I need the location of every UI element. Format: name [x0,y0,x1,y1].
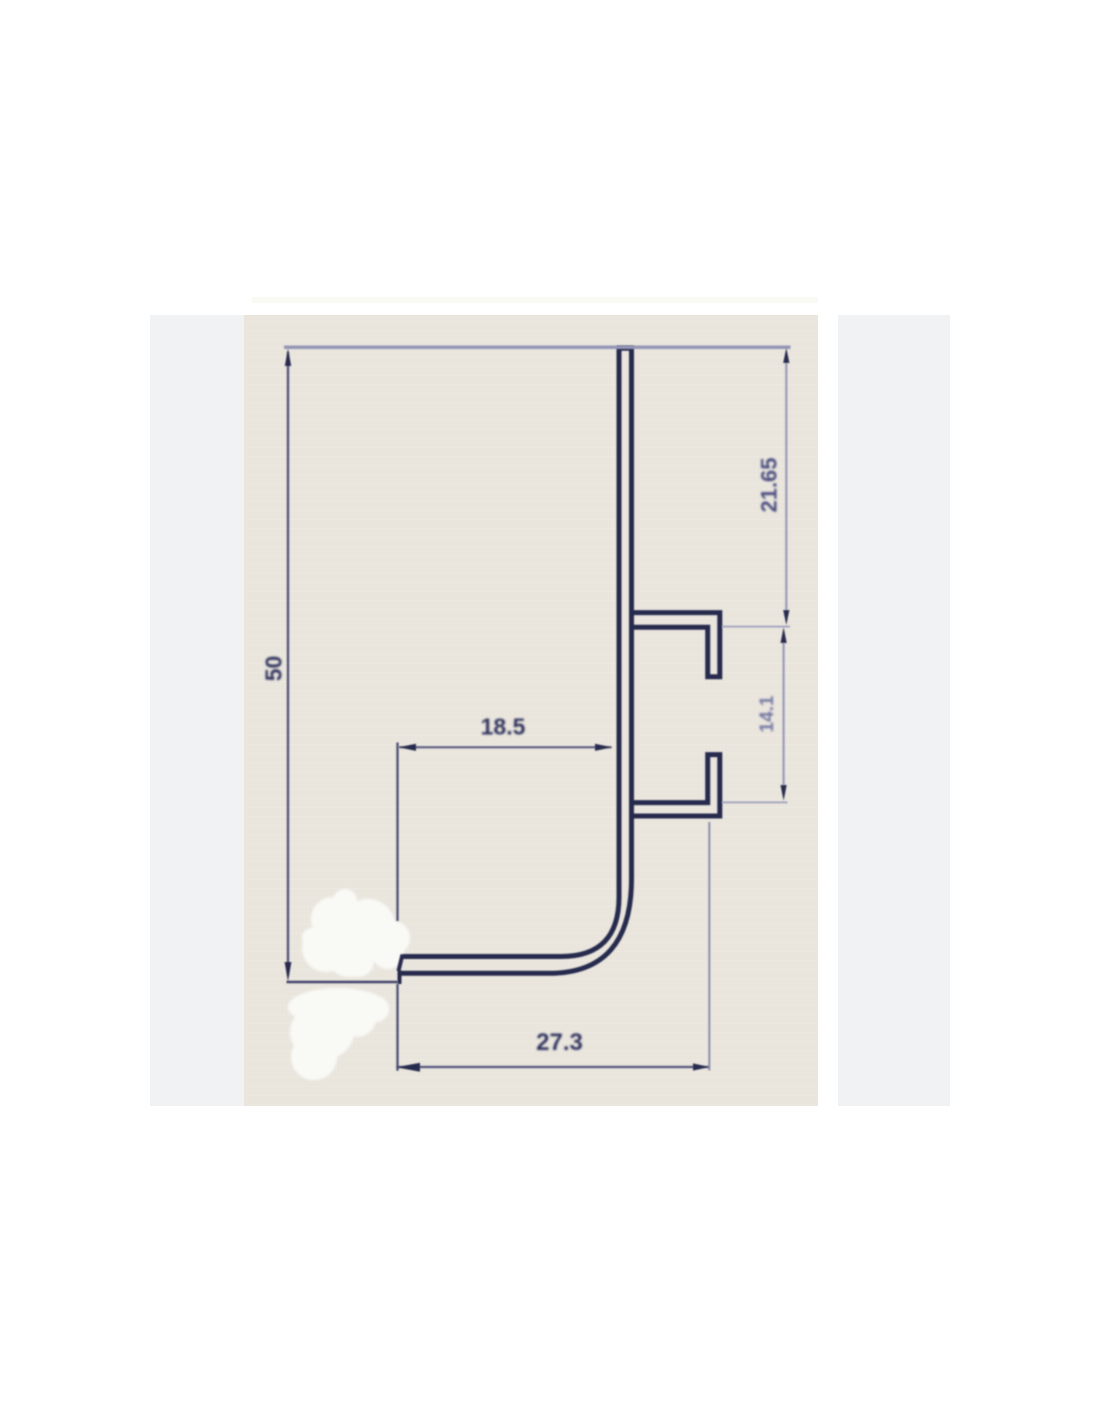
svg-text:18.5: 18.5 [481,714,526,740]
svg-text:50: 50 [261,656,287,682]
svg-text:14.1: 14.1 [757,695,778,732]
svg-text:21.65: 21.65 [757,457,782,512]
svg-text:27.3: 27.3 [536,1029,583,1056]
